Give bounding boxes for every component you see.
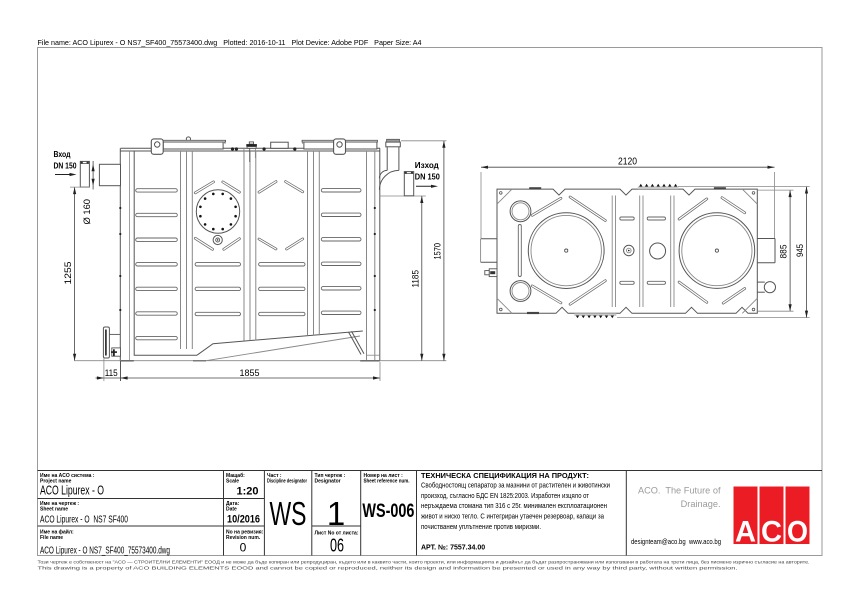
- svg-text:Sheet reference num.: Sheet reference num.: [364, 479, 411, 485]
- svg-text:АРТ. №: 7557.34.00: АРТ. №: 7557.34.00: [421, 544, 485, 552]
- svg-text:File name: File name: [40, 535, 63, 541]
- svg-text:06: 06: [330, 535, 344, 556]
- svg-text:Sheet name: Sheet name: [40, 506, 68, 512]
- svg-text:O: O: [787, 516, 808, 549]
- svg-text:2120: 2120: [618, 156, 637, 167]
- svg-text:designteam@aco.bg www.aco.bg: designteam@aco.bg www.aco.bg: [631, 537, 721, 546]
- svg-text:This drawing is a property of: This drawing is a property of ACO BUILDI…: [38, 566, 738, 571]
- svg-text:ACO Lipurex - O NS7_SF400_7557: ACO Lipurex - O NS7_SF400_75573400.dwg: [40, 546, 170, 557]
- svg-text:Този чертеж е собственост на ": Този чертеж е собственост на "АСО — СТРО…: [38, 560, 810, 565]
- svg-text:Designator: Designator: [315, 479, 341, 485]
- svg-text:1185: 1185: [410, 270, 421, 288]
- svg-text:Discipline designator: Discipline designator: [267, 479, 307, 485]
- svg-text:DN 150: DN 150: [415, 172, 440, 181]
- svg-text:1: 1: [327, 495, 345, 532]
- svg-text:неръждаема стомана тип 316 с 2: неръждаема стомана тип 316 с 25г. минима…: [421, 503, 607, 510]
- svg-text:File name: ACO Lipurex - O NS7: File name: ACO Lipurex - O NS7_SF400_755…: [38, 38, 422, 47]
- svg-text:Ø 160: Ø 160: [82, 199, 93, 225]
- svg-text:A: A: [735, 516, 756, 549]
- svg-text:произход, съгласно БДС EN 1825: произход, съгласно БДС EN 1825:2003. Изр…: [421, 492, 590, 500]
- svg-text:1255: 1255: [63, 262, 74, 285]
- svg-text:1:20: 1:20: [237, 486, 259, 498]
- svg-text:Вход: Вход: [54, 150, 72, 159]
- svg-text:Изход: Изход: [415, 161, 440, 170]
- svg-text:ACO Lipurex - O NS7 SF400: ACO Lipurex - O NS7 SF400: [40, 514, 128, 525]
- svg-text:945: 945: [795, 244, 806, 257]
- svg-text:C: C: [761, 516, 782, 549]
- svg-text:0: 0: [240, 541, 247, 555]
- svg-text:WS: WS: [270, 495, 307, 532]
- svg-text:10/2016: 10/2016: [227, 513, 260, 525]
- svg-text:ТЕХНИЧЕСКА СПЕЦИФИКАЦИЯ НА ПРО: ТЕХНИЧЕСКА СПЕЦИФИКАЦИЯ НА ПРОДУКТ:: [421, 473, 589, 480]
- svg-text:Свободностоящ сепаратор за маз: Свободностоящ сепаратор за мазнини от ра…: [421, 482, 610, 490]
- svg-text:885: 885: [779, 245, 790, 259]
- svg-text:почистванем уплътнение против: почистванем уплътнение против миризми.: [421, 524, 541, 531]
- svg-text:ACO. The Future of: ACO. The Future of: [638, 486, 721, 496]
- svg-text:1570: 1570: [433, 243, 444, 260]
- svg-text:WS-006: WS-006: [362, 501, 414, 522]
- svg-text:Scale: Scale: [226, 479, 239, 485]
- svg-text:Drainage.: Drainage.: [681, 499, 721, 509]
- svg-text:DN 150: DN 150: [54, 161, 77, 170]
- svg-text:ACO Lipurex - O: ACO Lipurex - O: [40, 484, 104, 498]
- svg-text:115: 115: [105, 368, 118, 379]
- svg-text:Date: Date: [226, 506, 237, 512]
- svg-text:живот и ниско тегло. С интегри: живот и ниско тегло. С интегриран утаече…: [421, 514, 604, 521]
- svg-text:1855: 1855: [240, 368, 260, 379]
